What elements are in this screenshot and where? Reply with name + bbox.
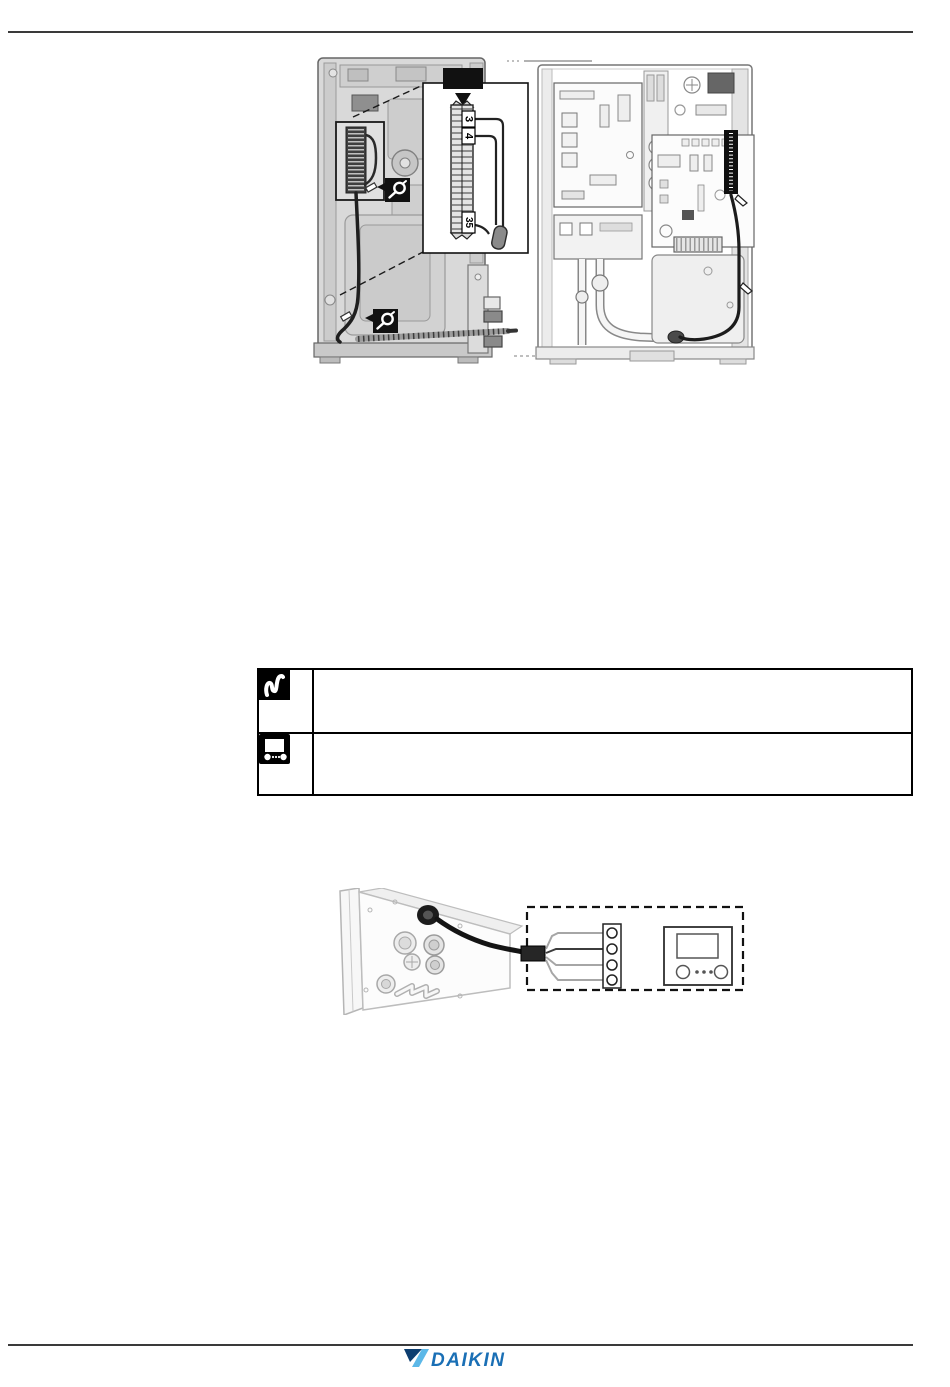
manual-page: 3 4 35 [0,0,950,1387]
field-wiring-icon-cell [258,669,313,733]
figure-thermostat-connection [300,888,755,1015]
pictogram-note-table [257,668,913,796]
terminal-screw [607,928,617,938]
room-thermostat [664,927,732,985]
table-row [258,733,912,795]
cable-gland [404,954,420,970]
wire [546,933,606,949]
terminal-label-3: 3 [462,111,475,127]
cable-gland [377,975,395,993]
wire [546,949,606,953]
figure-unit-internal-wiring: 3 4 35 [300,55,760,367]
terminal-tag-black-label [443,68,483,89]
thermostat-display [677,934,718,958]
cable-connector [521,946,545,961]
cable-gland [424,935,444,955]
terminal-screw [607,975,617,985]
svg-text:4: 4 [463,133,475,140]
terminal-screw [607,960,617,970]
daikin-logo-text: DAIKIN [431,1350,505,1371]
terminal-label-4: 4 [462,128,475,144]
indoor-unit-internal-view [536,65,754,364]
user-interface-icon [259,734,290,764]
thermostat-terminal-block [603,924,621,988]
wire [546,957,606,965]
note-text-cell [313,669,912,733]
svg-text:3: 3 [463,116,475,122]
unit-bottom-corner [340,888,522,1015]
header-rule [8,31,913,33]
note-text-cell [313,733,912,795]
daikin-logo: DAIKIN [402,1346,514,1377]
terminal-detail-callout: 3 4 35 [423,68,528,253]
terminal-location-highlight [336,122,384,200]
field-supply-zone [521,907,743,990]
cable-gland [426,956,444,974]
svg-text:35: 35 [463,217,474,229]
cable-gland [394,932,416,954]
table-row [258,669,912,733]
terminal-label-35: 35 [462,212,475,233]
field-wiring-icon [259,670,290,700]
user-interface-icon-cell [258,733,313,795]
terminal-screw [607,944,617,954]
